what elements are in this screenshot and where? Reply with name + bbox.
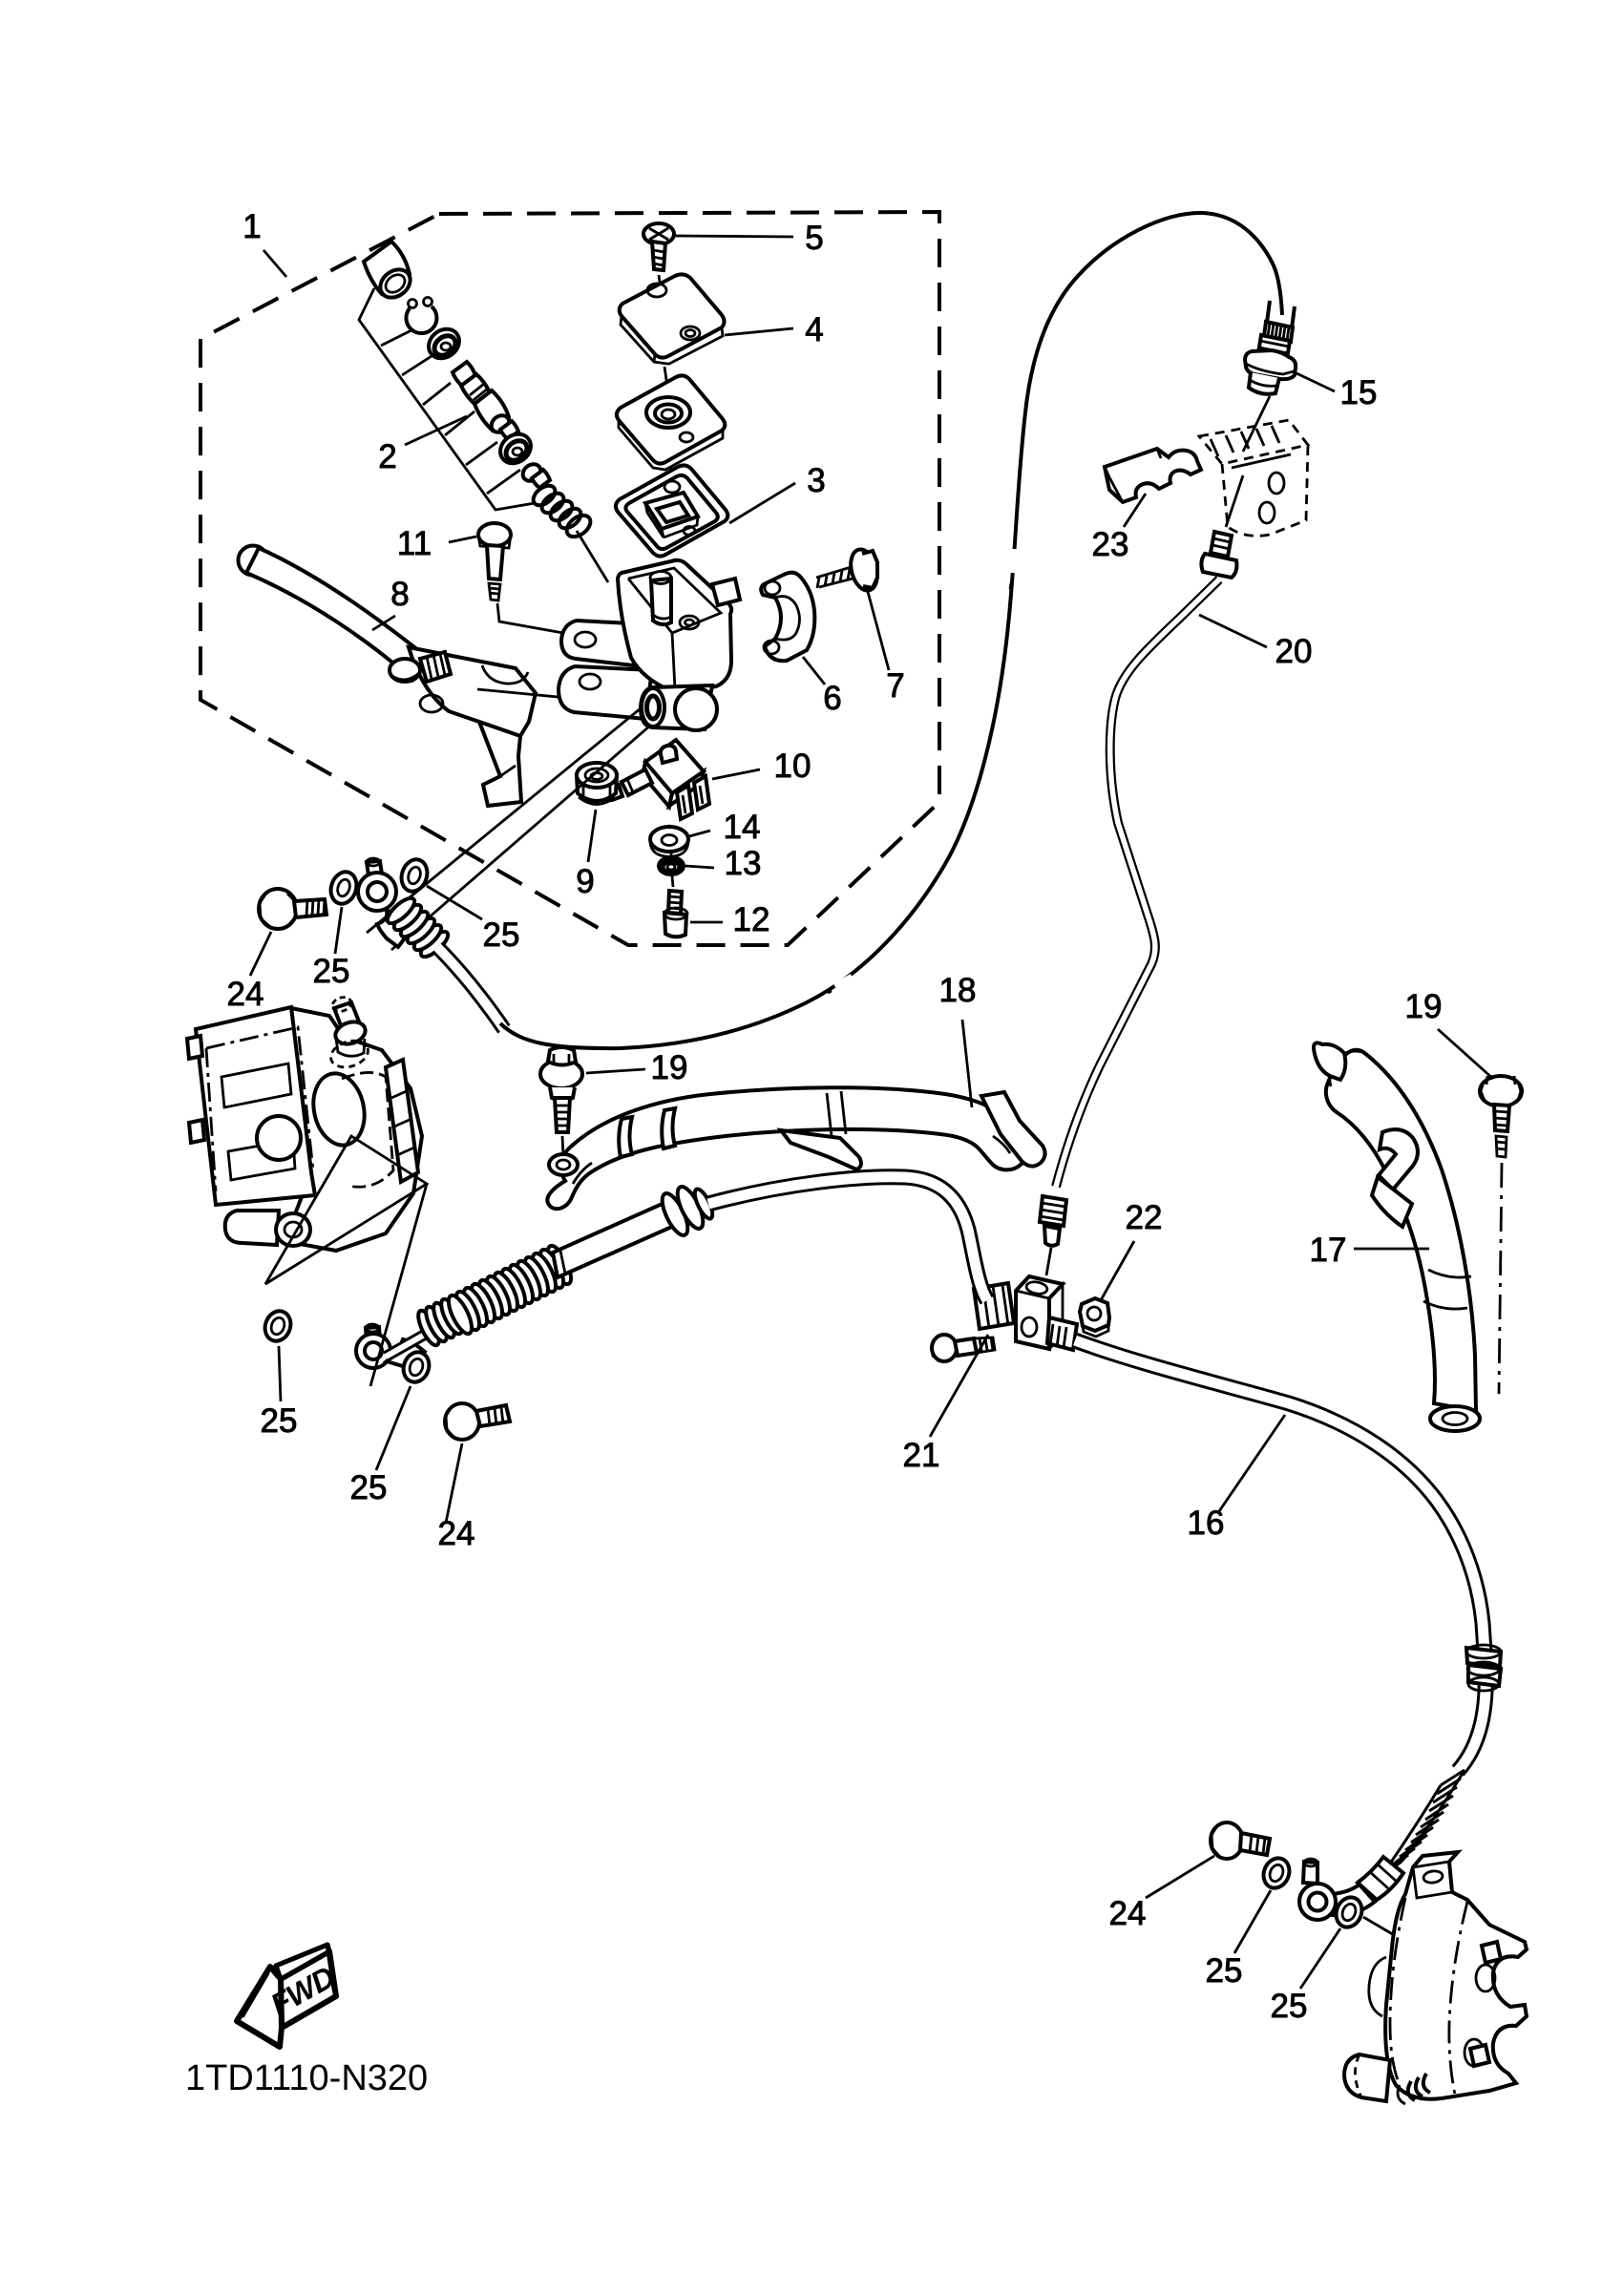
- svg-text:12: 12: [733, 901, 770, 938]
- svg-text:21: 21: [903, 1437, 940, 1474]
- svg-text:25: 25: [1206, 1952, 1243, 1990]
- svg-text:23: 23: [1092, 526, 1129, 563]
- svg-text:4: 4: [805, 311, 823, 348]
- svg-text:10: 10: [774, 748, 811, 785]
- svg-text:13: 13: [725, 845, 762, 882]
- svg-text:5: 5: [805, 220, 823, 257]
- svg-text:25: 25: [350, 1469, 388, 1506]
- svg-text:18: 18: [939, 972, 977, 1009]
- svg-text:2: 2: [378, 438, 396, 475]
- svg-text:11: 11: [397, 525, 432, 562]
- svg-text:24: 24: [1109, 1895, 1147, 1932]
- svg-text:24: 24: [227, 976, 264, 1013]
- svg-text:9: 9: [576, 863, 594, 900]
- svg-text:25: 25: [483, 916, 520, 954]
- svg-text:1TD1110-N320: 1TD1110-N320: [185, 2058, 428, 2098]
- svg-text:24: 24: [438, 1515, 475, 1552]
- svg-text:25: 25: [1271, 1988, 1308, 2025]
- svg-text:22: 22: [1126, 1199, 1163, 1236]
- svg-text:25: 25: [261, 1402, 298, 1440]
- svg-text:7: 7: [886, 667, 904, 705]
- svg-text:3: 3: [807, 462, 825, 499]
- svg-text:1: 1: [242, 208, 261, 245]
- svg-text:15: 15: [1340, 374, 1378, 411]
- svg-text:8: 8: [390, 576, 409, 613]
- svg-text:19: 19: [651, 1049, 688, 1086]
- svg-text:25: 25: [313, 953, 350, 990]
- svg-text:20: 20: [1275, 633, 1313, 670]
- svg-text:14: 14: [724, 809, 761, 846]
- svg-text:17: 17: [1310, 1232, 1347, 1269]
- svg-text:6: 6: [823, 680, 841, 717]
- svg-text:19: 19: [1405, 988, 1443, 1025]
